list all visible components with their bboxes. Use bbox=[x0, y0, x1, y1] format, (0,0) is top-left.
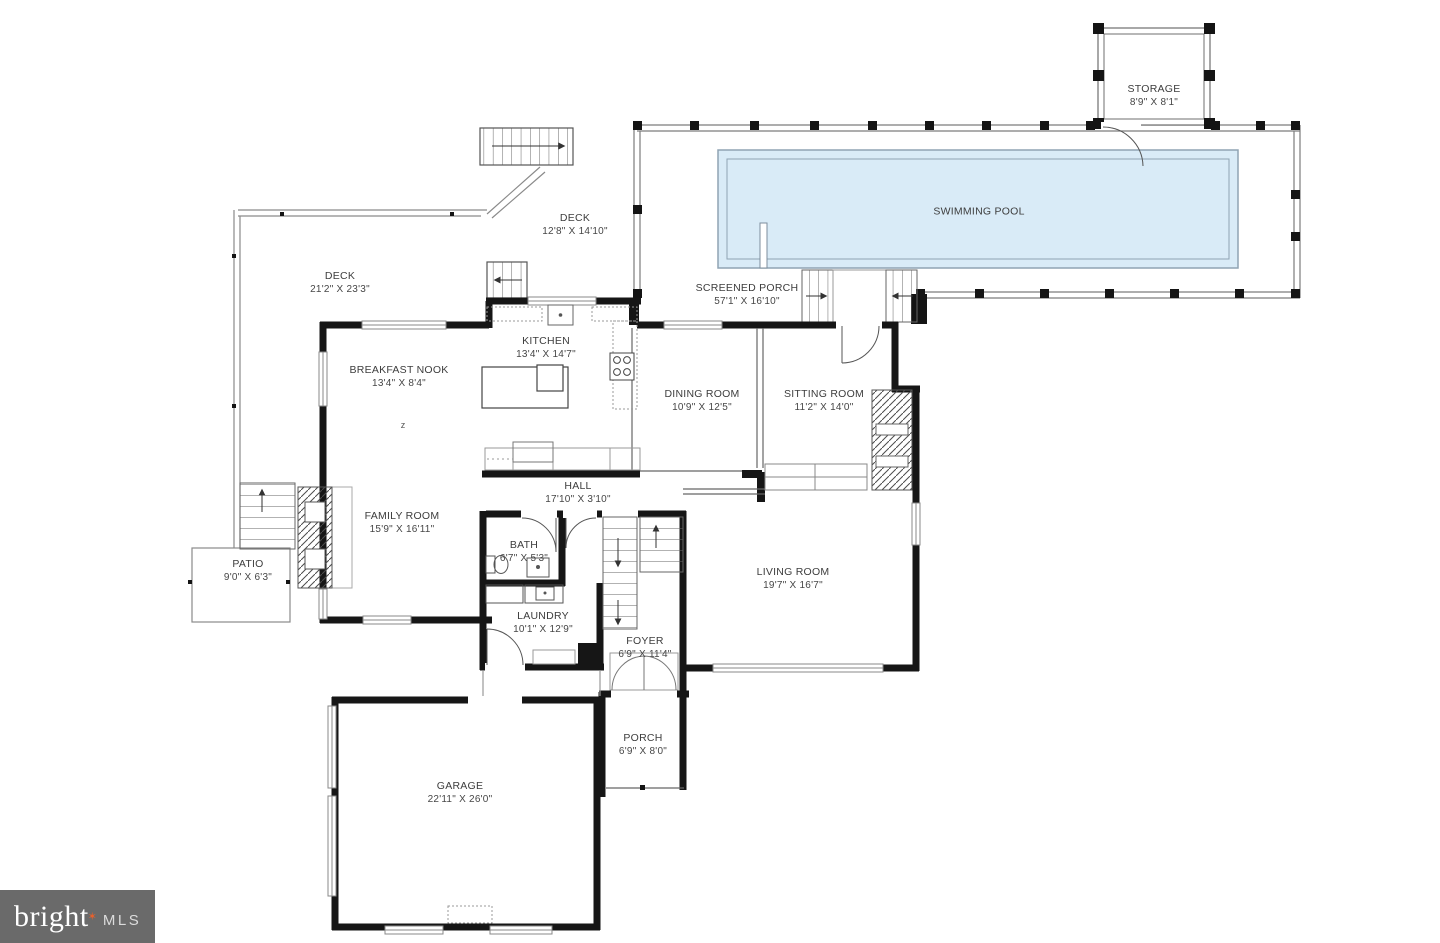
deck-patio-stairs bbox=[240, 483, 295, 549]
deck-stairs-top bbox=[480, 128, 573, 165]
family-room-fireplace bbox=[298, 487, 352, 588]
room-label-laundry: LAUNDRY10'1" X 12'9" bbox=[513, 610, 573, 636]
room-label-kitchen: KITCHEN13'4" X 14'7" bbox=[516, 335, 576, 361]
deck-stairs-small bbox=[487, 262, 527, 298]
entry-door-right-arc bbox=[644, 656, 676, 690]
washer bbox=[486, 585, 523, 603]
room-label-foyer: FOYER6'9" X 11'4" bbox=[618, 635, 671, 661]
room-label-storage: STORAGE8'9" X 8'1" bbox=[1128, 83, 1181, 109]
logo-mls-text: MLS bbox=[103, 912, 141, 929]
logo-star-icon: ✶ bbox=[88, 910, 97, 923]
room-label-bath: BATH6'7" X 5'3" bbox=[500, 539, 548, 565]
floor-plan-drawing bbox=[0, 0, 1440, 943]
main-stairs bbox=[603, 517, 683, 629]
porch-ticks bbox=[640, 785, 645, 790]
garage-extras bbox=[448, 906, 492, 923]
room-label-hall: HALL17'10" X 3'10" bbox=[545, 480, 611, 506]
hall-builtins bbox=[485, 442, 640, 470]
room-label-swimming-pool: SWIMMING POOL bbox=[933, 206, 1024, 219]
porch-steps bbox=[802, 270, 917, 322]
room-label-dining-room: DINING ROOM10'9" X 12'5" bbox=[664, 388, 739, 414]
room-label-patio: PATIO9'0" X 6'3" bbox=[224, 558, 272, 584]
entry-door-left-arc bbox=[612, 656, 644, 690]
bright-mls-logo: bright✶MLS bbox=[0, 890, 155, 943]
room-label-sitting-room: SITTING ROOM11'2" X 14'0" bbox=[784, 388, 864, 414]
floor-plan-page: STORAGE8'9" X 8'1" SWIMMING POOL SCREENE… bbox=[0, 0, 1440, 943]
room-label-porch: PORCH6'9" X 8'0" bbox=[619, 732, 667, 758]
room-label-deck-upper: DECK12'8" X 14'10" bbox=[542, 212, 608, 238]
room-label-breakfast-nook: BREAKFAST NOOK13'4" X 8'4" bbox=[350, 364, 449, 390]
stove bbox=[610, 353, 634, 380]
room-label-deck-left: DECK21'2" X 23'3" bbox=[310, 270, 370, 296]
ceiling-fan-mark: z bbox=[401, 420, 406, 430]
room-label-family-room: FAMILY ROOM15'9" X 16'11" bbox=[365, 510, 440, 536]
sitting-room-fireplace bbox=[872, 390, 912, 490]
room-label-garage: GARAGE22'11" X 26'0" bbox=[428, 780, 493, 806]
pool-ladder bbox=[760, 223, 767, 268]
hall-door bbox=[566, 518, 596, 548]
island-sink bbox=[537, 365, 563, 391]
room-label-living-room: LIVING ROOM19'7" X 16'7" bbox=[757, 566, 830, 592]
room-label-screened-porch: SCREENED PORCH57'1" X 16'10" bbox=[696, 282, 799, 308]
logo-brand-text: bright bbox=[14, 902, 89, 932]
sitting-room-builtin bbox=[765, 464, 867, 490]
sitting-room-door bbox=[842, 326, 879, 363]
